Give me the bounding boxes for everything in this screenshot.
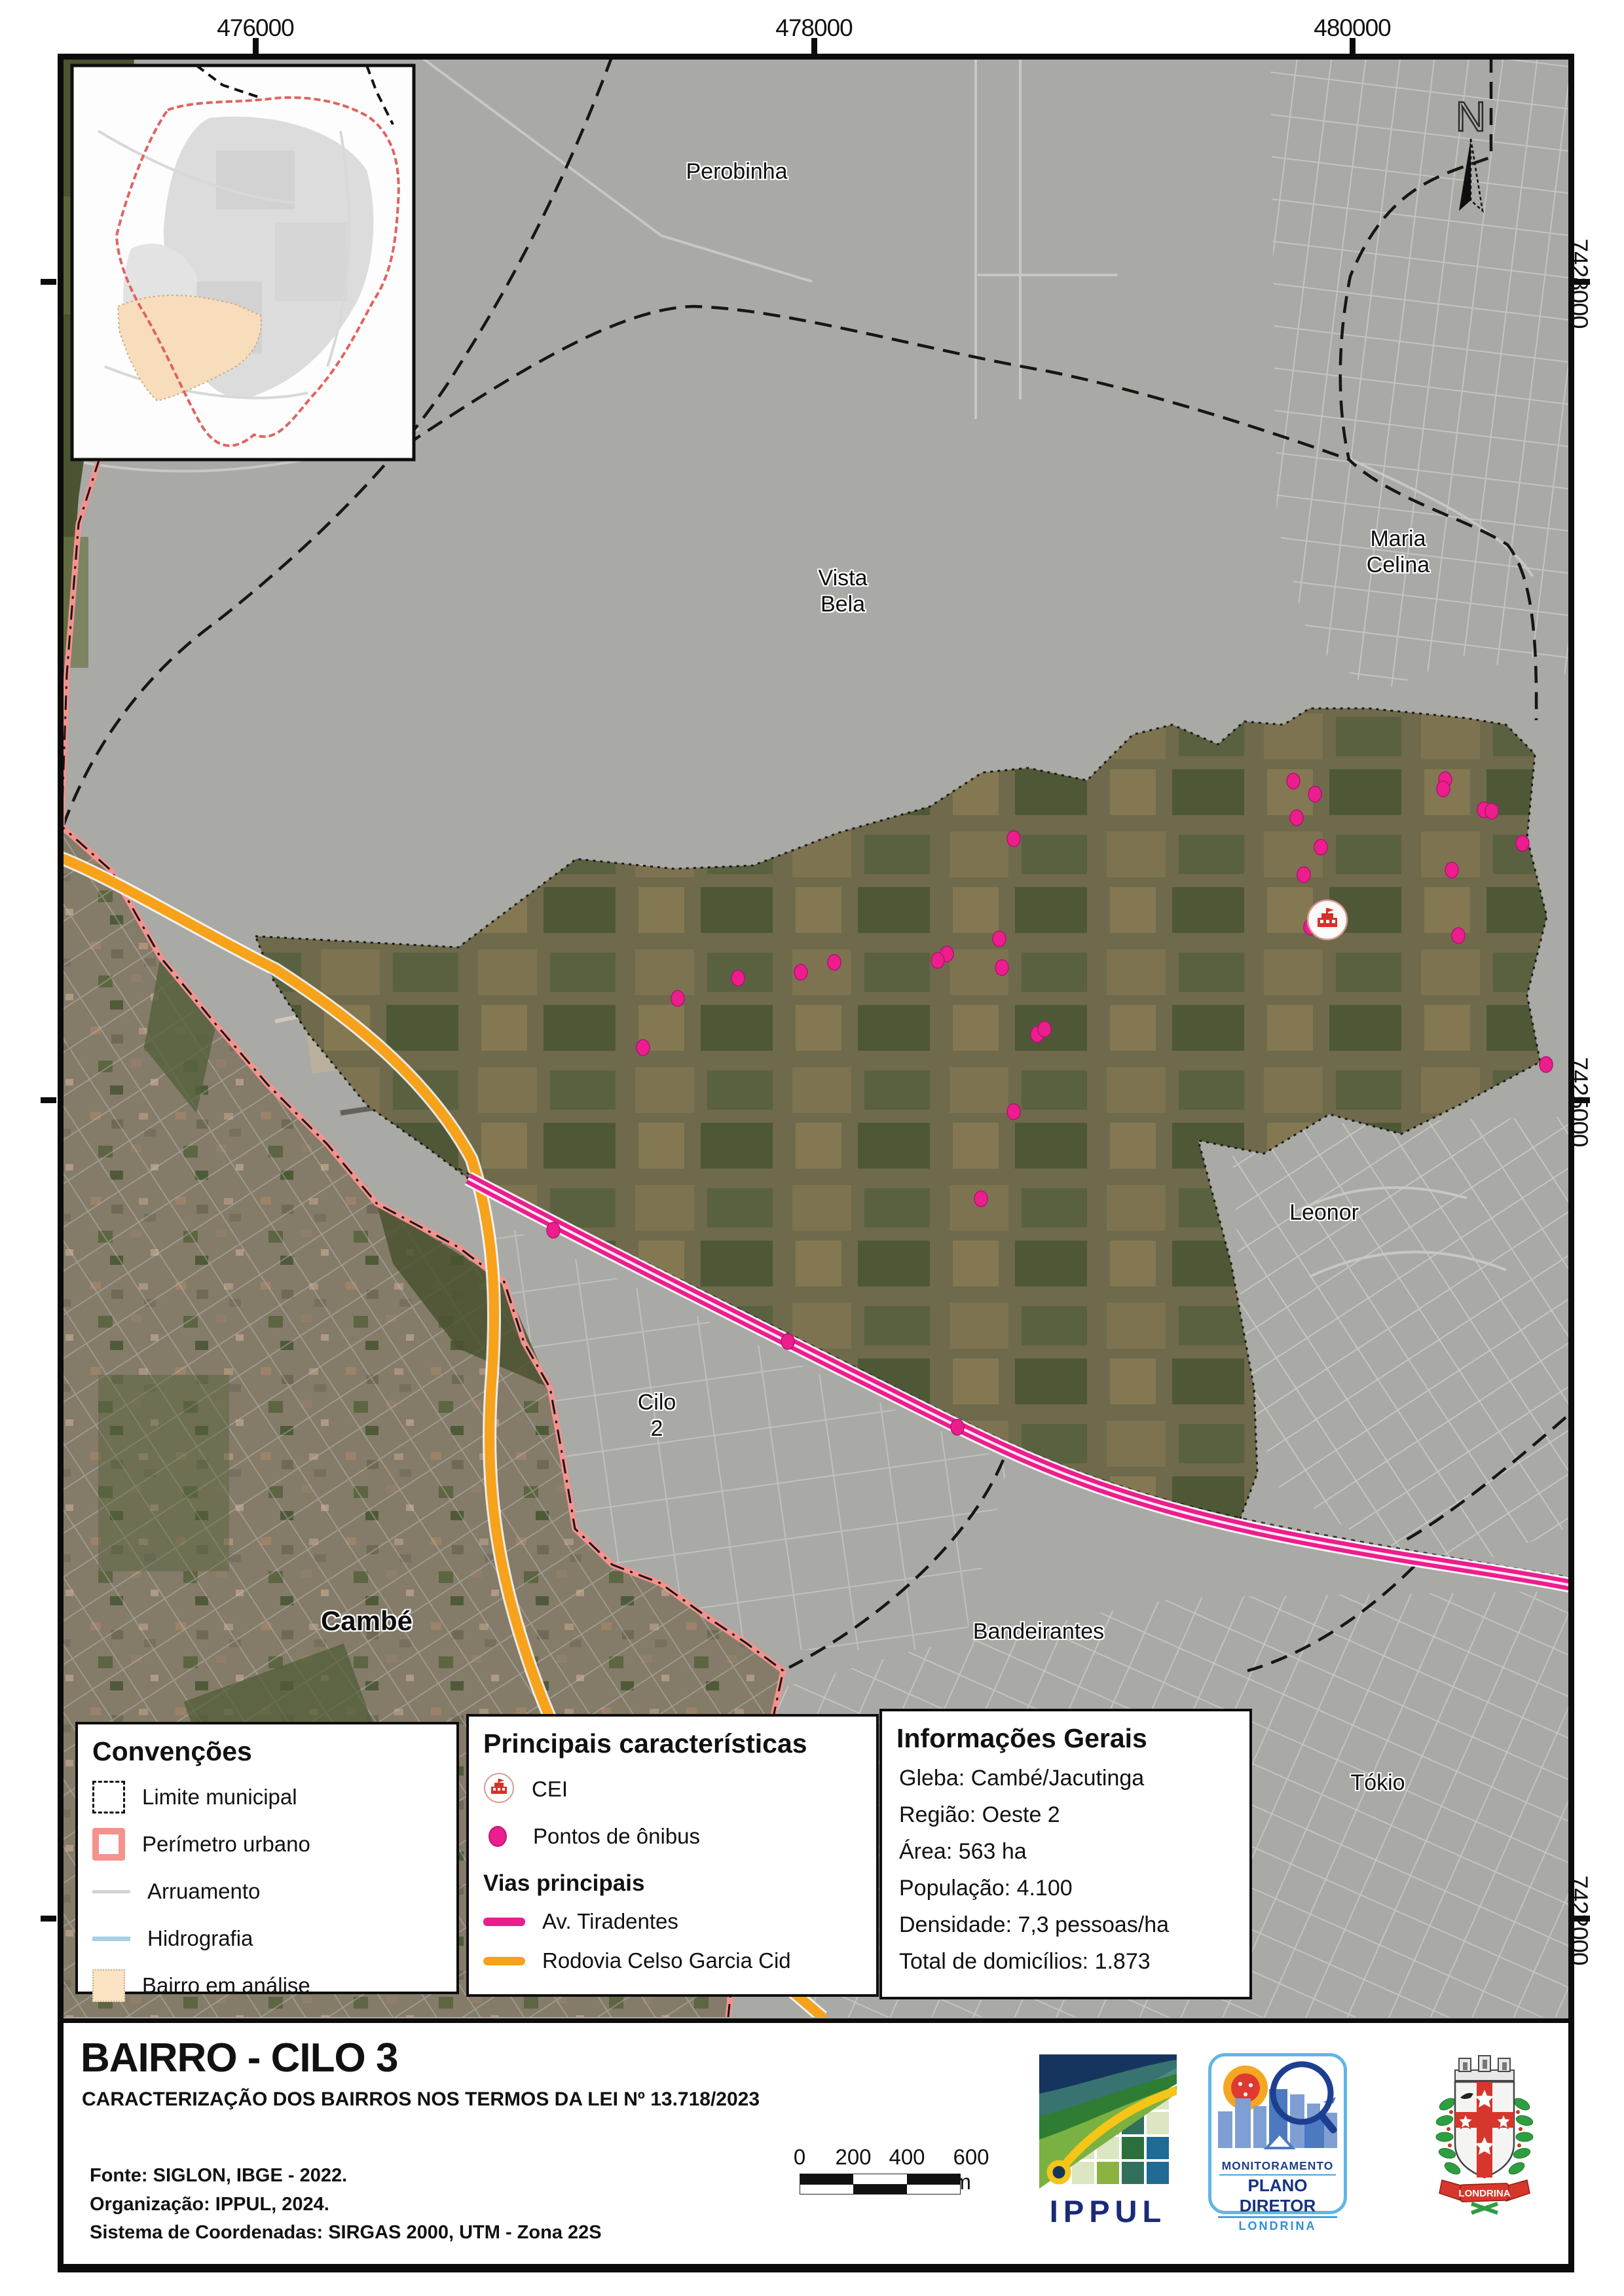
av-tiradentes-swatch — [483, 1918, 525, 1926]
ippul-logo: IPPUL — [1039, 2054, 1177, 2229]
info-domicilios: Total de domicílios: 1.873 — [899, 1949, 1249, 1975]
londrina-coat-of-arms: LONDRINA — [1435, 2052, 1534, 2215]
bus-stop-point — [1290, 810, 1303, 826]
grid-tick — [1574, 1097, 1590, 1103]
perimetro-urbano-swatch — [92, 1828, 125, 1861]
hidrografia-swatch — [92, 1937, 130, 1941]
grid-tick — [41, 1097, 56, 1103]
legend-item-bairro-analise: Bairro em análise — [92, 1969, 456, 2003]
bus-stop-point — [974, 1191, 987, 1207]
legend-item-label: Limite municipal — [142, 1785, 297, 1810]
plano-diretor-line3: LONDRINA — [1211, 2219, 1344, 2233]
bus-stop-point — [671, 991, 684, 1006]
legend-item-rodovia: Rodovia Celso Garcia Cid — [483, 1944, 876, 1978]
legend-item-arruamento: Arruamento — [92, 1874, 456, 1908]
bus-stop-point — [794, 964, 807, 980]
legend-conventions-title: Convenções — [92, 1736, 456, 1767]
bairro-analise-swatch — [92, 1969, 125, 2002]
info-box-title: Informações Gerais — [896, 1723, 1249, 1754]
plano-diretor-line1: MONITORAMENTO — [1219, 2159, 1336, 2176]
plano-diretor-logo: MONITORAMENTO PLANO DIRETOR LONDRINA — [1208, 2053, 1347, 2214]
legend-item-label: Perímetro urbano — [142, 1832, 310, 1857]
info-densidade: Densidade: 7,3 pessoas/ha — [899, 1912, 1249, 1938]
bus-stop-point — [951, 1419, 964, 1435]
bus-stop-point — [1445, 862, 1458, 878]
bus-stop-point — [1540, 1057, 1553, 1072]
bus-stop-point — [781, 1334, 794, 1349]
rodovia-swatch — [483, 1957, 525, 1965]
legend-item-label: Rodovia Celso Garcia Cid — [542, 1948, 791, 1973]
info-area: Área: 563 ha — [899, 1839, 1249, 1865]
svg-text:N: N — [1456, 93, 1486, 140]
sheet-subtitle: CARACTERIZAÇÃO DOS BAIRROS NOS TERMOS DA… — [82, 2088, 760, 2111]
legend-conventions: Convenções Limite municipal Perímetro ur… — [75, 1722, 459, 1994]
bus-stop-point — [1437, 781, 1450, 797]
bus-stop-point — [731, 970, 745, 986]
bus-stop-point — [1297, 867, 1310, 883]
inset-map — [72, 65, 414, 460]
source-fonte: Fonte: SIGLON, IBGE - 2022. — [90, 2162, 602, 2191]
bus-stop-point — [995, 960, 1008, 975]
scale-label: 0 — [794, 2145, 805, 2170]
scale-label: 400 — [889, 2145, 925, 2170]
legend-features-title: Principais características — [483, 1728, 876, 1759]
arruamento-swatch — [92, 1890, 130, 1893]
bus-stop-point — [828, 955, 841, 970]
bus-stop-point — [1516, 835, 1529, 851]
legend-item-av-tiradentes: Av. Tiradentes — [483, 1904, 876, 1939]
grid-tick — [253, 38, 259, 54]
legend-item-label: Pontos de ônibus — [533, 1824, 700, 1849]
bus-stop-point — [1007, 831, 1020, 847]
grid-tick — [1574, 279, 1590, 285]
cei-marker-icon — [1308, 900, 1347, 939]
info-regiao: Região: Oeste 2 — [899, 1802, 1249, 1828]
sheet-title: BAIRRO - CILO 3 — [81, 2035, 397, 2081]
grid-tick — [41, 279, 56, 285]
bus-stop-point — [1287, 773, 1300, 789]
bus-stop-point — [1007, 1104, 1020, 1120]
scale-label: 200 — [835, 2145, 871, 2170]
grid-tick — [811, 38, 817, 54]
bus-stop-point — [1308, 786, 1321, 802]
legend-item-cei: CEI — [483, 1772, 876, 1806]
source-notes: Fonte: SIGLON, IBGE - 2022. Organização:… — [90, 2162, 602, 2248]
legend-item-label: CEI — [532, 1777, 568, 1802]
ippul-logo-text: IPPUL — [1039, 2193, 1177, 2229]
vias-principais-subtitle: Vias principais — [483, 1870, 876, 1897]
bus-stop-point — [547, 1222, 560, 1238]
bus-stop-point — [1452, 928, 1465, 943]
legend-features: Principais características CEI Pontos de… — [466, 1714, 879, 1997]
source-coords: Sistema de Coordenadas: SIRGAS 2000, UTM… — [90, 2219, 602, 2248]
title-block: BAIRRO - CILO 3 CARACTERIZAÇÃO DOS BAIRR… — [58, 2023, 1574, 2272]
legend-item-hidrografia: Hidrografia — [92, 1922, 456, 1956]
bus-stop-point — [1314, 839, 1327, 855]
plano-diretor-art — [1211, 2056, 1344, 2153]
bus-stop-point — [993, 931, 1006, 947]
bus-stop-point — [637, 1040, 650, 1055]
legend-item-label: Bairro em análise — [142, 1973, 310, 1998]
limite-municipal-swatch — [92, 1781, 125, 1813]
legend-item-label: Arruamento — [147, 1879, 260, 1904]
info-gleba: Gleba: Cambé/Jacutinga — [899, 1766, 1249, 1791]
legend-item-label: Av. Tiradentes — [542, 1909, 678, 1934]
cei-icon — [483, 1772, 515, 1807]
legend-item-perimetro-urbano: Perímetro urbano — [92, 1827, 456, 1861]
grid-tick — [1574, 1916, 1590, 1922]
bus-stop-point — [931, 953, 944, 968]
bus-stop-point — [1038, 1021, 1051, 1037]
svg-text:LONDRINA: LONDRINA — [1458, 2188, 1510, 2199]
plano-diretor-line2: PLANO DIRETOR — [1218, 2176, 1337, 2218]
grid-tick — [1350, 38, 1356, 54]
legend-item-pontos-onibus: Pontos de ônibus — [483, 1819, 876, 1853]
grid-tick — [41, 1916, 56, 1922]
info-box: Informações Gerais Gleba: Cambé/Jacuting… — [879, 1709, 1252, 1999]
scale-bar-graphic — [800, 2174, 961, 2195]
legend-item-label: Hidrografia — [147, 1926, 253, 1951]
map-sheet: 476000 478000 480000 7428000 7425000 742… — [0, 0, 1624, 2296]
bus-stop-icon — [489, 1826, 507, 1847]
bus-stop-point — [1485, 803, 1498, 819]
source-org: Organização: IPPUL, 2024. — [90, 2191, 602, 2219]
info-populacao: População: 4.100 — [899, 1876, 1249, 1901]
legend-item-limite-municipal: Limite municipal — [92, 1780, 456, 1814]
